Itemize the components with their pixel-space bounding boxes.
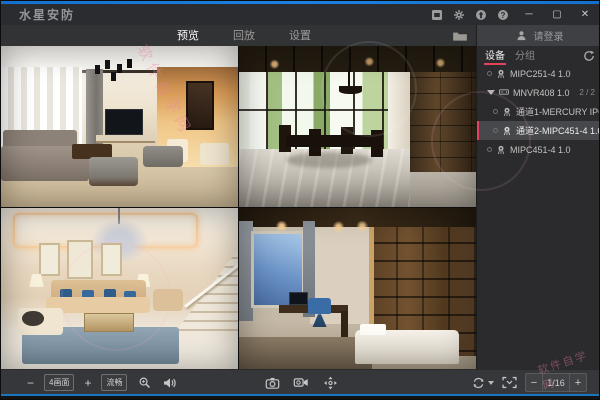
window-bottom-edge bbox=[1, 396, 600, 400]
status-dot-icon bbox=[487, 71, 492, 76]
tab-preview-label: 预览 bbox=[177, 30, 199, 42]
tab-playback-label: 回放 bbox=[233, 30, 255, 42]
maximize-button[interactable]: ▢ bbox=[549, 7, 565, 22]
q4-pillow bbox=[360, 324, 386, 335]
q3-coffee-table bbox=[84, 313, 134, 332]
q1-ceiling-lamp bbox=[105, 60, 110, 69]
app-window: 水星安防 ? ─ ▢ ✕ 预览 回放 设置 bbox=[0, 0, 600, 400]
layout-plus-button[interactable]: + bbox=[84, 377, 91, 389]
titlebar-controls: ? ─ ▢ ✕ bbox=[430, 4, 593, 25]
q3-table-lamp-1 bbox=[29, 274, 43, 287]
user-icon bbox=[515, 29, 528, 42]
sidebar-tab-group[interactable]: 分组 bbox=[515, 47, 535, 64]
capture-controls bbox=[265, 370, 338, 395]
camera-device-icon bbox=[502, 107, 512, 117]
update-icon[interactable] bbox=[474, 8, 487, 21]
device-label: MIPC451-4 1.0 bbox=[510, 145, 571, 155]
digital-zoom-icon[interactable] bbox=[137, 376, 152, 389]
device-row-mnvr408[interactable]: MNVR408 1.0 2 / 2 bbox=[477, 83, 600, 102]
q4-office-chair bbox=[308, 298, 332, 314]
status-dot-icon bbox=[493, 109, 498, 114]
login-label: 请登录 bbox=[534, 28, 564, 43]
video-grid bbox=[1, 46, 476, 369]
q1-mirror bbox=[186, 81, 214, 129]
q3-wall-art-3 bbox=[101, 243, 122, 275]
q3-armchair bbox=[153, 289, 184, 312]
device-sidebar: 设备 分组 MIPC251-4 1.0 MNVR408 1.0 2 / 2 bbox=[476, 46, 600, 369]
status-dot-icon bbox=[487, 147, 492, 152]
page-next-button[interactable]: + bbox=[570, 374, 586, 391]
titlebar: 水星安防 ? ─ ▢ ✕ bbox=[1, 4, 600, 25]
page-controls: − 1/16 + bbox=[471, 370, 587, 395]
close-button[interactable]: ✕ bbox=[577, 7, 593, 22]
login-button[interactable]: 请登录 bbox=[476, 25, 600, 46]
camera-device-icon bbox=[496, 69, 506, 79]
device-row-channel2-selected[interactable]: 通道2-MIPC451-4 1.0 bbox=[477, 121, 600, 140]
app-logo: 水星安防 bbox=[19, 6, 75, 23]
q2-pendant-stem bbox=[348, 70, 350, 88]
tab-playback[interactable]: 回放 bbox=[229, 25, 259, 47]
q3-throw-blanket bbox=[22, 311, 43, 325]
q2-pendant-lamp bbox=[339, 86, 363, 94]
refresh-icon[interactable] bbox=[583, 49, 595, 61]
device-list: MIPC251-4 1.0 MNVR408 1.0 2 / 2 通道1-MERC… bbox=[477, 64, 600, 159]
q4-monitor bbox=[289, 292, 308, 305]
camera-view-2[interactable] bbox=[239, 46, 476, 207]
camera-device-icon bbox=[502, 126, 512, 136]
page-indicator: 1/16 bbox=[542, 374, 570, 391]
layout-minus-button[interactable]: − bbox=[27, 377, 34, 389]
fullscreen-icon[interactable] bbox=[502, 376, 517, 389]
minimize-button[interactable]: ─ bbox=[521, 7, 537, 22]
q2-wall-edge bbox=[388, 65, 409, 155]
layout-controls: − 4画面 + 流畅 bbox=[27, 370, 177, 395]
tab-settings[interactable]: 设置 bbox=[285, 25, 315, 47]
q1-ottoman bbox=[89, 157, 139, 186]
stream-mode-button[interactable]: 流畅 bbox=[101, 374, 127, 391]
q3-wall-art-1 bbox=[39, 243, 60, 275]
camera-view-4[interactable] bbox=[239, 208, 476, 369]
layout-label-button[interactable]: 4画面 bbox=[44, 374, 74, 391]
tour-loop-button[interactable] bbox=[471, 376, 494, 389]
q4-floor bbox=[239, 337, 372, 369]
gear-icon[interactable] bbox=[452, 8, 465, 21]
q2-dining-table bbox=[286, 135, 371, 148]
help-icon[interactable]: ? bbox=[496, 8, 509, 21]
screenshot-icon[interactable] bbox=[430, 8, 443, 21]
channel-count: 2 / 2 bbox=[579, 88, 595, 97]
q1-chair2 bbox=[200, 143, 228, 166]
folder-icon[interactable] bbox=[452, 29, 468, 42]
device-label: MNVR408 1.0 bbox=[513, 88, 570, 98]
tab-settings-label: 设置 bbox=[289, 30, 311, 42]
bottom-toolbar: − 4画面 + 流畅 bbox=[1, 369, 600, 394]
sidebar-tabs: 设备 分组 bbox=[477, 46, 600, 64]
page-navigator: − 1/16 + bbox=[525, 373, 587, 392]
loop-caret-icon bbox=[488, 381, 494, 385]
ptz-pan-icon[interactable] bbox=[323, 376, 338, 389]
device-row-mipc451[interactable]: MIPC451-4 1.0 bbox=[477, 140, 600, 159]
camera-device-icon bbox=[496, 145, 506, 155]
q4-desk-leg bbox=[341, 311, 348, 337]
svg-text:?: ? bbox=[500, 10, 505, 19]
q2-coffered-ceiling bbox=[239, 46, 476, 72]
volume-icon[interactable] bbox=[162, 376, 177, 389]
snapshot-icon[interactable] bbox=[265, 376, 280, 389]
status-dot-icon bbox=[493, 128, 498, 133]
nvr-device-icon bbox=[499, 88, 509, 98]
q1-tv-cabinet bbox=[96, 135, 155, 143]
device-row-mipc251[interactable]: MIPC251-4 1.0 bbox=[477, 64, 600, 83]
camera-view-1[interactable] bbox=[1, 46, 238, 207]
loop-icon bbox=[471, 376, 486, 389]
record-icon[interactable] bbox=[294, 376, 309, 389]
device-label: 通道1-MERCURY IPC bbox=[516, 105, 600, 118]
main-tabbar: 预览 回放 设置 bbox=[1, 25, 476, 46]
device-label: 通道2-MIPC451-4 1.0 bbox=[516, 124, 600, 137]
q4-daybed bbox=[355, 330, 459, 364]
device-row-channel1[interactable]: 通道1-MERCURY IPC bbox=[477, 102, 600, 121]
expand-caret-icon[interactable] bbox=[487, 90, 495, 95]
main-tabs: 预览 回放 设置 bbox=[173, 25, 315, 47]
q1-tv bbox=[105, 109, 143, 135]
device-label: MIPC251-4 1.0 bbox=[510, 69, 571, 79]
q3-wall-art-2 bbox=[67, 240, 93, 279]
tab-preview[interactable]: 预览 bbox=[173, 25, 203, 47]
q1-ottoman2 bbox=[143, 146, 183, 167]
page-prev-button[interactable]: − bbox=[526, 374, 542, 391]
sidebar-tab-device[interactable]: 设备 bbox=[485, 47, 505, 64]
camera-view-3[interactable] bbox=[1, 208, 238, 369]
